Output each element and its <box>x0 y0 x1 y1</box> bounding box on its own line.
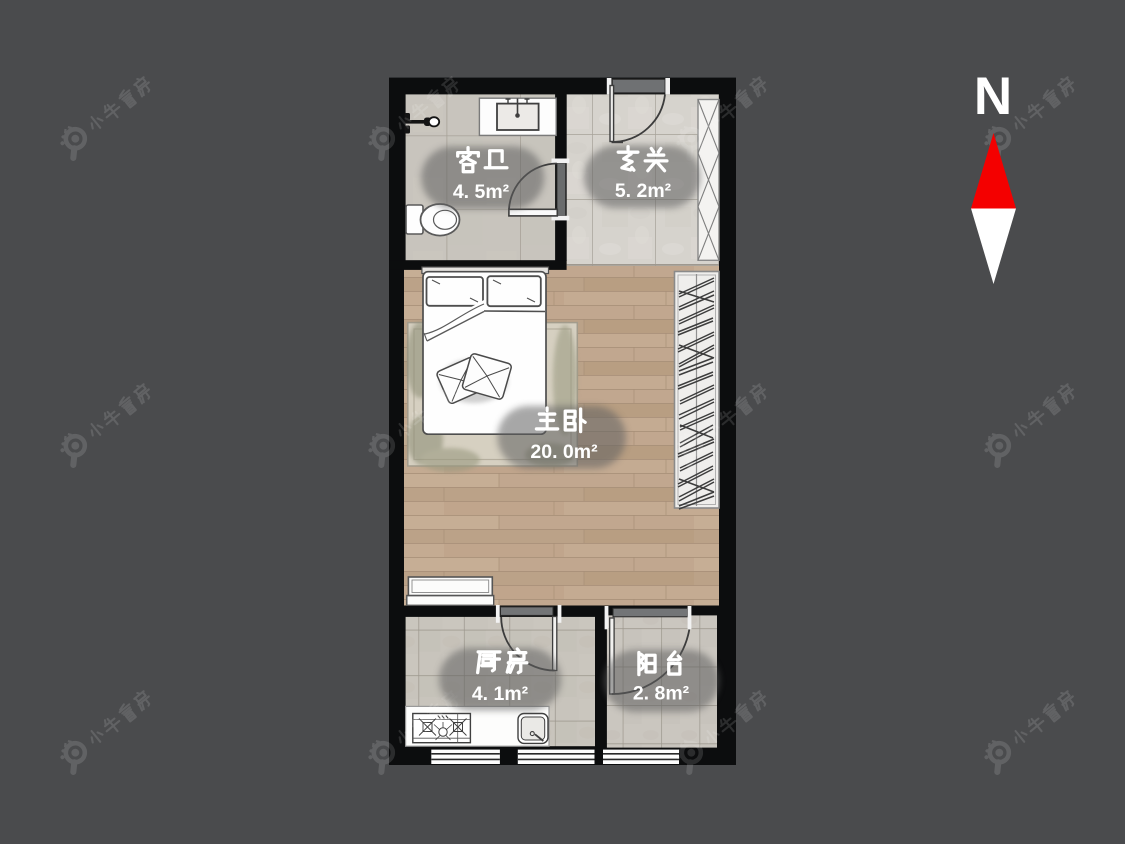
svg-text:20. 0m²: 20. 0m² <box>530 441 598 463</box>
svg-text:2. 8m²: 2. 8m² <box>633 683 690 705</box>
svg-text:5. 2m²: 5. 2m² <box>615 180 672 202</box>
svg-text:4. 1m²: 4. 1m² <box>472 683 529 705</box>
svg-text:N: N <box>974 67 1012 126</box>
svg-text:4. 5m²: 4. 5m² <box>453 181 510 203</box>
